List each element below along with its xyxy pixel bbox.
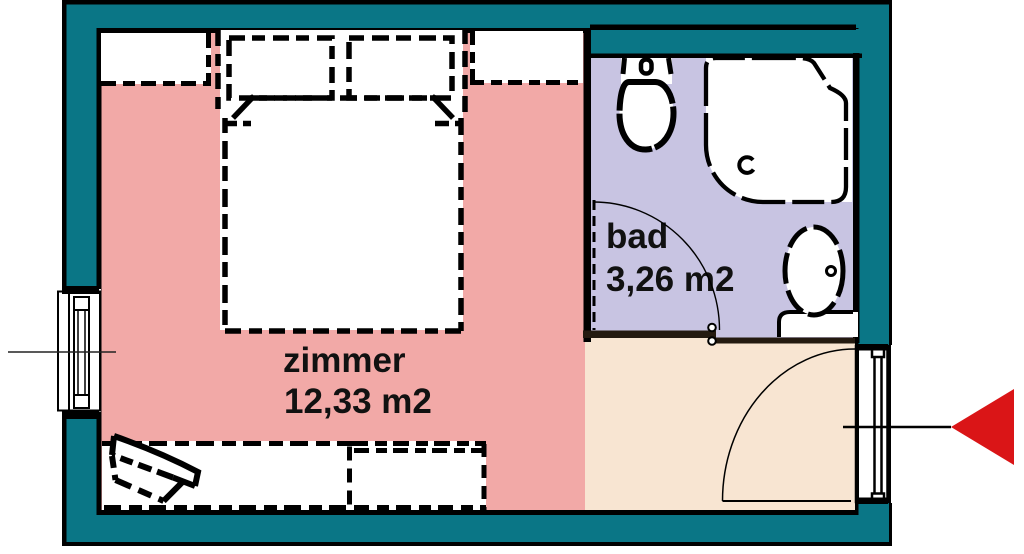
- svg-text:12,33 m2: 12,33 m2: [284, 382, 432, 421]
- svg-text:3,26 m2: 3,26 m2: [606, 260, 734, 299]
- svg-text:bad: bad: [606, 217, 668, 256]
- svg-text:zimmer: zimmer: [283, 341, 406, 380]
